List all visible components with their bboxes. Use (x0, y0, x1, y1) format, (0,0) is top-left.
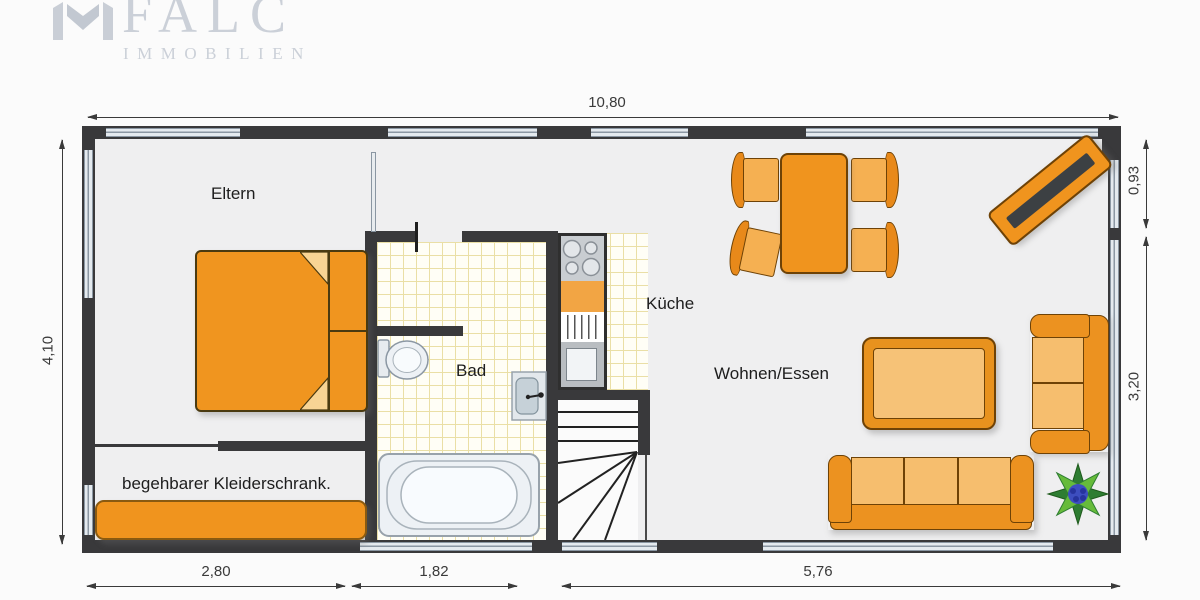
room-label-bad: Bad (456, 361, 486, 381)
window (388, 128, 537, 137)
window (591, 128, 688, 137)
cooktop (561, 236, 604, 281)
washbasin (511, 371, 547, 421)
dimension-line-right-upper (1146, 140, 1147, 228)
bath-door-frame-mark (415, 222, 418, 252)
logo-brand-text: FALC (122, 0, 296, 41)
dimension-label-right-lower: 3,20 (1126, 365, 1143, 409)
window (84, 485, 93, 535)
window (763, 542, 1053, 551)
sofa-cushions (1032, 337, 1084, 429)
sofa-three-seat (828, 455, 1034, 530)
dimension-label-bottom-middle: 1,82 (394, 563, 474, 580)
duvet-fold (300, 376, 328, 410)
sofa-two-seat (1030, 314, 1108, 452)
bathtub (377, 452, 541, 538)
dimension-label-bottom-right: 5,76 (778, 563, 858, 580)
stairs (558, 400, 638, 540)
wall-closet-slider-track (95, 444, 220, 447)
sofa-base (830, 503, 1032, 530)
dimension-line-top (88, 117, 1118, 118)
dining-table (780, 153, 848, 274)
sofa-armrest (828, 455, 852, 523)
room-label-eltern: Eltern (211, 184, 255, 204)
bedroom-door-leaf (371, 152, 376, 232)
window (84, 150, 93, 298)
stairs-open-edge (645, 455, 647, 540)
floorplan: FALC IMMOBILIEN (0, 0, 1200, 600)
falc-logo-icon (52, 0, 114, 40)
dimension-label-right-upper: 0,93 (1126, 159, 1143, 203)
window (1110, 160, 1119, 228)
pillow (330, 330, 366, 332)
sofa-cushions (851, 457, 1011, 505)
room-label-wohnen-essen: Wohnen/Essen (714, 364, 829, 384)
sofa-armrest (1030, 314, 1090, 338)
sofa-armrest (1030, 430, 1090, 454)
logo-subtitle-text: IMMOBILIEN (123, 44, 312, 64)
window (1110, 240, 1119, 535)
dimension-line-bottom-left (87, 586, 345, 587)
duvet-fold (300, 252, 328, 286)
wall-stairs-top (558, 390, 650, 400)
toilet (377, 334, 435, 384)
dimension-line-bottom-right (562, 586, 1120, 587)
room-label-kueche: Küche (646, 294, 694, 314)
wall-bath-top-right (462, 231, 558, 242)
dimension-line-bottom-middle (352, 586, 517, 587)
kitchen-sink (561, 342, 604, 387)
dimension-label-top: 10,80 (562, 94, 652, 111)
window (562, 542, 657, 551)
double-bed (195, 250, 368, 412)
dimension-label-left: 4,10 (40, 329, 57, 373)
dining-chair (851, 158, 887, 202)
room-label-kleiderschrank: begehbarer Kleiderschrank. (122, 474, 331, 494)
window (806, 128, 1098, 137)
dining-chair (743, 158, 779, 202)
wall-bath-right (546, 232, 558, 540)
wall-closet (218, 441, 377, 451)
window (106, 128, 240, 137)
wall-stairs-right (638, 390, 650, 455)
wardrobe (95, 500, 367, 540)
dining-chair (851, 228, 887, 272)
dimension-line-left (62, 140, 63, 544)
kitchen-counter (558, 233, 607, 390)
wall-bath-top-left (365, 231, 418, 242)
window (360, 542, 532, 551)
coffee-table (862, 337, 996, 430)
plant-icon (1045, 461, 1111, 527)
coffee-table-top (873, 348, 985, 419)
counter-worktop (561, 281, 604, 312)
dish-drainer (561, 312, 604, 342)
dimension-label-bottom-left: 2,80 (176, 563, 256, 580)
dimension-line-right-lower (1146, 237, 1147, 540)
sofa-armrest (1010, 455, 1034, 523)
